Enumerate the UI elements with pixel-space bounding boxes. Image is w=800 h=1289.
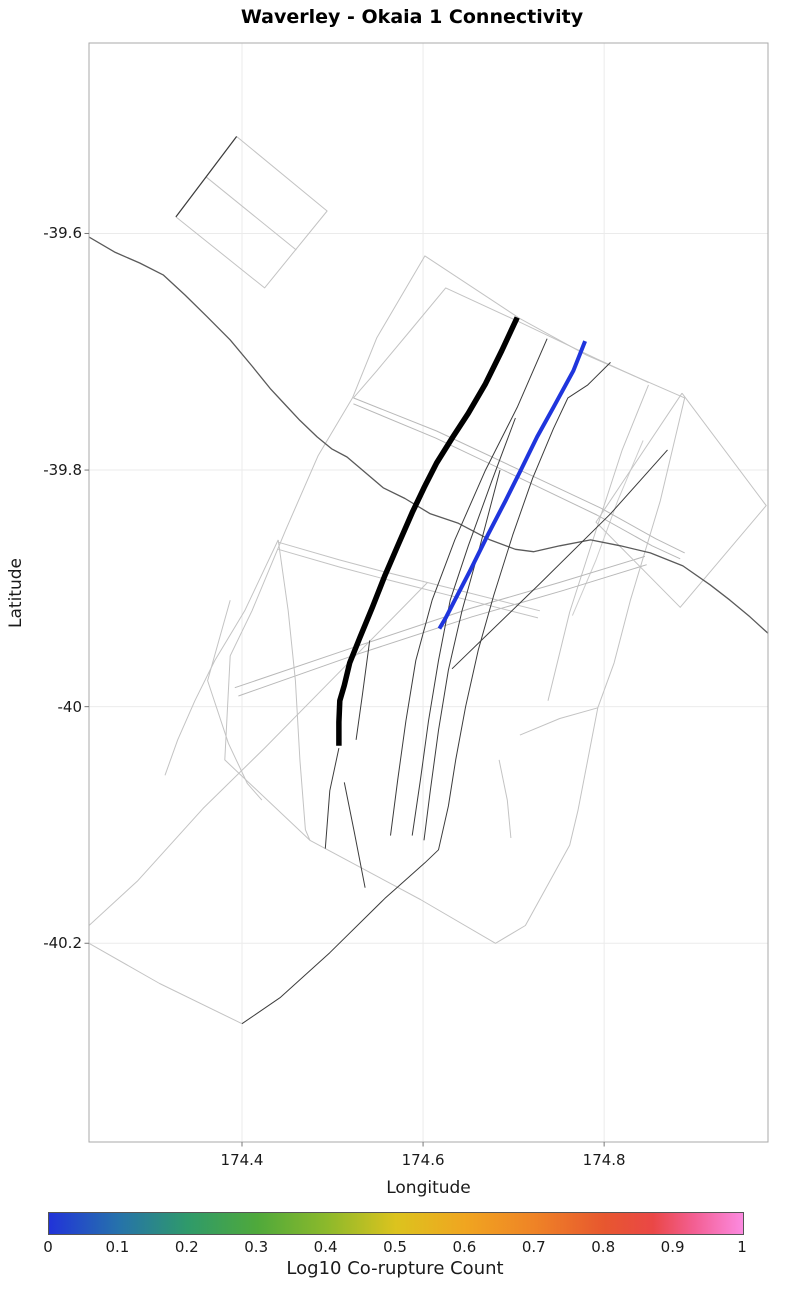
x-tick-label: 174.6	[402, 1151, 445, 1169]
series-surface-outline-upper-rect	[176, 137, 327, 288]
series-surface-sliver-center	[499, 760, 511, 838]
x-axis-label: Longitude	[89, 1178, 768, 1198]
series-fault-trace-northwest-segment	[176, 137, 237, 217]
colorbar-tick-label: 0.1	[105, 1238, 129, 1256]
series-fault-trace-long-east	[242, 362, 611, 1023]
colorbar-tick-label: 0.7	[522, 1238, 546, 1256]
colorbar-gradient	[48, 1212, 744, 1235]
colorbar-tick-label: 0.8	[591, 1238, 615, 1256]
series-surface-outline-upper-rect-midline	[206, 177, 296, 250]
series-corupture-fault-okaia1	[439, 341, 585, 628]
x-tick-label: 174.4	[221, 1151, 264, 1169]
series-surface-outline-southwest-v	[89, 943, 242, 1023]
y-tick-label: -40.2	[0, 934, 82, 952]
map-plot-area	[0, 0, 800, 1289]
colorbar-tick-label: 1	[737, 1238, 747, 1256]
series-surface-edge-southwest-long	[89, 582, 428, 925]
colorbar-tick-label: 0.3	[244, 1238, 268, 1256]
series-surface-edge-left-small	[208, 600, 262, 800]
series-surface-band-lower-a	[235, 556, 645, 687]
series-surface-edge-junction	[520, 708, 598, 735]
series-surface-band-mid-a	[278, 542, 540, 611]
series-surface-wedge-left-a	[165, 540, 278, 775]
y-tick-label: -39.8	[0, 461, 82, 479]
y-tick-label: -39.6	[0, 224, 82, 242]
series-fault-trace-short-left	[356, 640, 370, 739]
figure: Waverley - Okaia 1 Connectivity Longitud…	[0, 0, 800, 1289]
series-fault-trace-below-black-tip	[325, 748, 339, 849]
colorbar-tick-label: 0.9	[661, 1238, 685, 1256]
colorbar-tick-label: 0.6	[452, 1238, 476, 1256]
series-fault-trace-sliver	[344, 782, 365, 887]
series-surface-band-mid-b	[278, 549, 538, 618]
colorbar-tick-label: 0	[43, 1238, 53, 1256]
series-surface-outline-right-diamond	[596, 393, 766, 607]
colorbar-tick-label: 0.5	[383, 1238, 407, 1256]
y-tick-label: -40	[0, 698, 82, 716]
x-tick-label: 174.8	[583, 1151, 626, 1169]
series-surface-outline-inner-right	[548, 385, 649, 701]
y-axis-label: Latitude	[6, 523, 26, 663]
colorbar-tick-label: 0.2	[175, 1238, 199, 1256]
series-surface-wedge-left-b	[278, 540, 310, 840]
colorbar-label: Log10 Co-rupture Count	[48, 1258, 742, 1279]
colorbar-tick-label: 0.4	[314, 1238, 338, 1256]
